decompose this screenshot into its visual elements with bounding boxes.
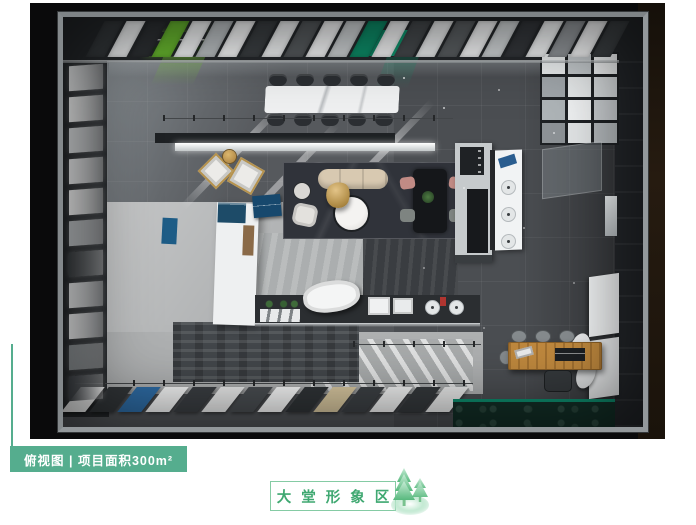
blue-shelf-board <box>161 218 177 245</box>
pink-chair <box>399 176 416 190</box>
side-table <box>294 183 310 199</box>
page: 俯视图 | 项目面积300m² 大堂形象区 <box>0 0 696 525</box>
gray-chair <box>400 209 415 222</box>
corner-grid-panel <box>542 77 565 97</box>
kitchen-island <box>455 143 492 261</box>
blue-display-item <box>498 154 517 169</box>
shelf-display-panel <box>69 250 103 277</box>
pine-trees-icon <box>391 467 431 515</box>
leaning-glass-panels <box>542 141 602 199</box>
red-accent-item <box>440 297 446 306</box>
conference-chair <box>323 74 341 86</box>
basin-display <box>501 234 516 250</box>
shelf-display-panel <box>69 219 103 246</box>
tile-slabs <box>260 309 300 322</box>
shelf-display-panel <box>69 157 103 184</box>
table-tray <box>555 348 585 361</box>
area-caption-box: 大堂形象区 <box>270 481 396 511</box>
rail-posts <box>353 341 481 347</box>
island-black-panel <box>467 189 488 253</box>
left-shelf-panels <box>63 17 109 427</box>
lit-shelf-strip <box>175 143 435 151</box>
corner-grid-panel <box>542 123 565 143</box>
table-object <box>514 346 534 359</box>
skylight-edge <box>63 60 619 63</box>
corner-grid-panel <box>568 123 591 143</box>
wood-display-table <box>508 342 602 370</box>
conference-chair <box>377 74 395 86</box>
skylight-row <box>63 17 643 63</box>
conference-table <box>264 86 399 113</box>
reception-desk <box>213 202 259 325</box>
shelf-display-panel <box>69 343 103 370</box>
conference-chair <box>296 74 314 86</box>
basin-display-stand <box>495 150 522 251</box>
right-wall <box>615 61 643 427</box>
desk-blue-sign <box>217 202 246 223</box>
rail-posts <box>73 380 473 386</box>
basin-display <box>425 300 440 315</box>
shelf-display-panel <box>69 64 103 91</box>
white-appliance <box>393 298 413 314</box>
corner-grid-panel <box>594 123 617 143</box>
showroom-plan <box>58 12 648 432</box>
shelf-display-panel <box>69 374 103 401</box>
basin-display <box>501 207 516 223</box>
bright-doorway <box>605 196 617 236</box>
rendering-canvas <box>30 3 665 439</box>
white-wall-panel <box>589 273 619 337</box>
rail-posts <box>163 115 453 121</box>
partition-wall <box>155 133 395 143</box>
corner-grid-panel <box>594 100 617 120</box>
accent-line <box>11 344 13 446</box>
plants <box>262 300 298 308</box>
basin-display <box>449 300 464 315</box>
desk-wood-accent <box>242 225 254 255</box>
basin-display <box>501 180 516 196</box>
shelf-display-panel <box>69 126 103 153</box>
textured-tile-wall <box>173 322 359 382</box>
appliance-block <box>460 147 484 175</box>
corner-grid-panel <box>568 77 591 97</box>
area-caption-text: 大堂形象区 <box>267 486 400 507</box>
corner-grid-panel <box>568 100 591 120</box>
shelf-display-panel <box>69 312 103 339</box>
view-info-label: 俯视图 | 项目面积300m² <box>10 446 187 472</box>
white-appliance <box>368 297 390 315</box>
gold-side-table <box>223 150 236 163</box>
corner-grid-panel <box>594 77 617 97</box>
conference-chair <box>350 74 368 86</box>
table-plant <box>422 191 434 203</box>
floor-marble-dark <box>363 235 458 299</box>
blue-floor-sign <box>252 194 282 218</box>
downlight-reflections <box>403 77 405 79</box>
shelf-display-panel <box>69 95 103 122</box>
entrance-green-mat <box>453 399 615 428</box>
ottoman <box>545 371 571 391</box>
shelf-display-panel <box>69 281 103 308</box>
negotiation-table <box>413 169 447 233</box>
corner-grid-panel <box>542 100 565 120</box>
shelf-display-panel <box>69 188 103 215</box>
conference-chair <box>269 74 287 86</box>
counter-light-edge <box>255 323 480 327</box>
island-end-cap <box>455 255 492 263</box>
